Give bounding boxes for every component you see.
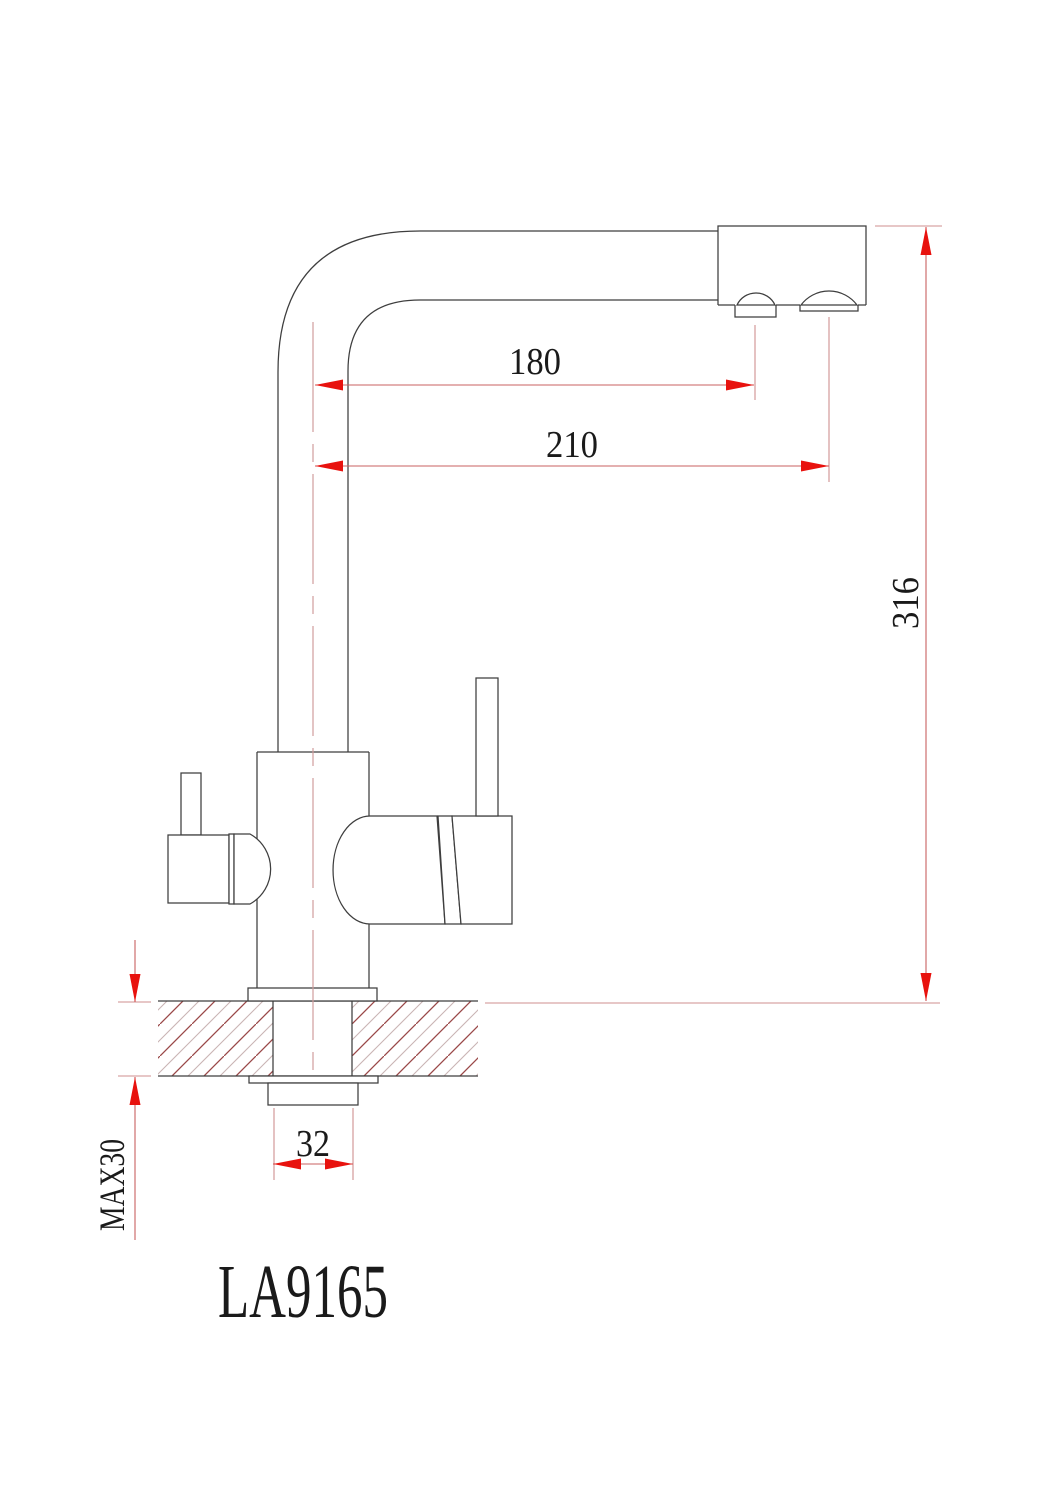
handle-right [333,678,512,924]
dimension-label-max30: MAX30 [92,1139,132,1231]
dimension-spout-height: 316 [885,227,932,1001]
model-number-label: LA9165 [218,1250,388,1334]
dimension-spout-reach-secondary: 210 [315,424,829,472]
handle-left-collar [229,834,234,904]
aerator-small-base [735,305,776,317]
arrowhead-left-icon [315,461,343,472]
dimension-label-210: 210 [546,424,598,466]
dimension-max-counter-thickness: MAX30 [92,940,141,1240]
arrowhead-down-icon [130,974,141,1002]
handle-right-lever [476,678,498,816]
dimension-spout-reach-primary: 180 [315,341,754,391]
drawing-page: 180 210 316 MAX30 [0,0,1046,1500]
countertop-hatch-left [158,1001,273,1076]
mounting-washer [249,1076,378,1083]
mounting-nut [268,1083,358,1105]
handle-left-cap [234,834,271,904]
arrowhead-up-icon [921,227,932,255]
handle-left [168,773,271,904]
arrowhead-down-icon [921,973,932,1001]
technical-drawing-canvas: 180 210 316 MAX30 [0,0,1046,1500]
spout-head [718,226,866,305]
handle-left-body [168,835,229,903]
countertop-section [158,1001,478,1076]
arrowhead-left-icon [315,380,343,391]
dimension-label-32: 32 [296,1123,330,1165]
dimension-annotations: 180 210 316 MAX30 [92,226,942,1240]
aerator-large-dome [801,291,857,305]
handle-left-lever [181,773,201,835]
arrowhead-up-icon [130,1077,141,1105]
arrowhead-right-icon [801,461,829,472]
handle-right-body [452,816,512,924]
arrowhead-right-icon [726,380,754,391]
countertop-hatch-right [352,1001,478,1076]
dimension-label-180: 180 [509,341,561,383]
dimension-label-316: 316 [885,577,927,629]
spout-tube-outer-edge [278,231,718,752]
aerator-small-dome [737,293,775,305]
dimension-shank-diameter: 32 [273,1123,353,1170]
aerator-large-base [800,305,858,311]
handle-right-joint-dome [333,816,445,924]
